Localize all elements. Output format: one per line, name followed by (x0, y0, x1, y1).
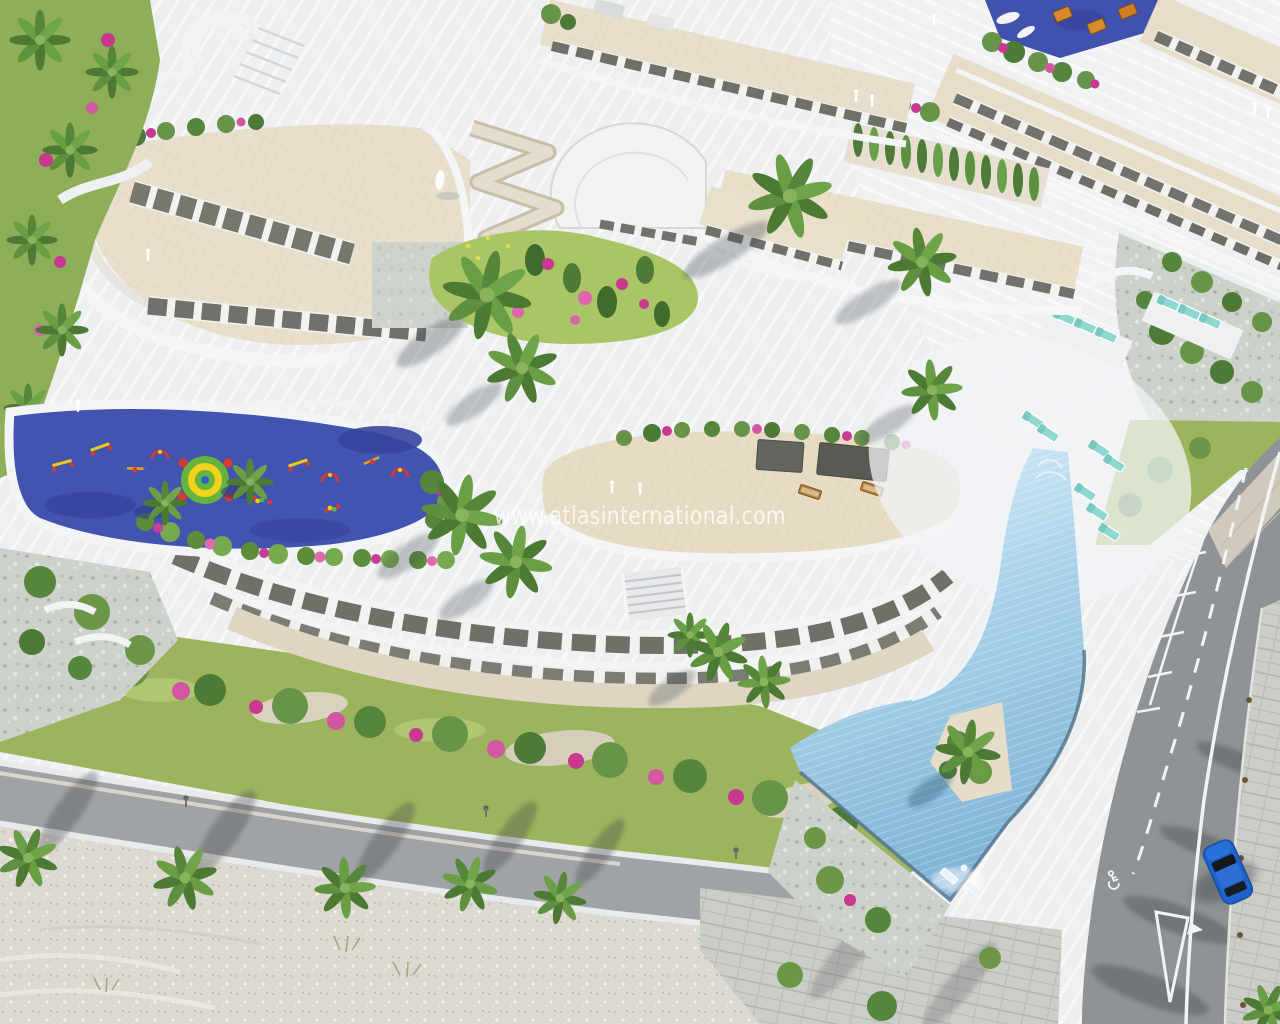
play-circle-target (178, 456, 234, 504)
watermark: www.atlasinternational.com (494, 501, 786, 530)
resort-aerial-view: www.atlasinternational.com (0, 0, 1280, 1024)
shaded-recess (756, 439, 804, 472)
aerial-render-canvas: www.atlasinternational.com (0, 0, 1280, 1024)
central-stairs (622, 567, 687, 622)
